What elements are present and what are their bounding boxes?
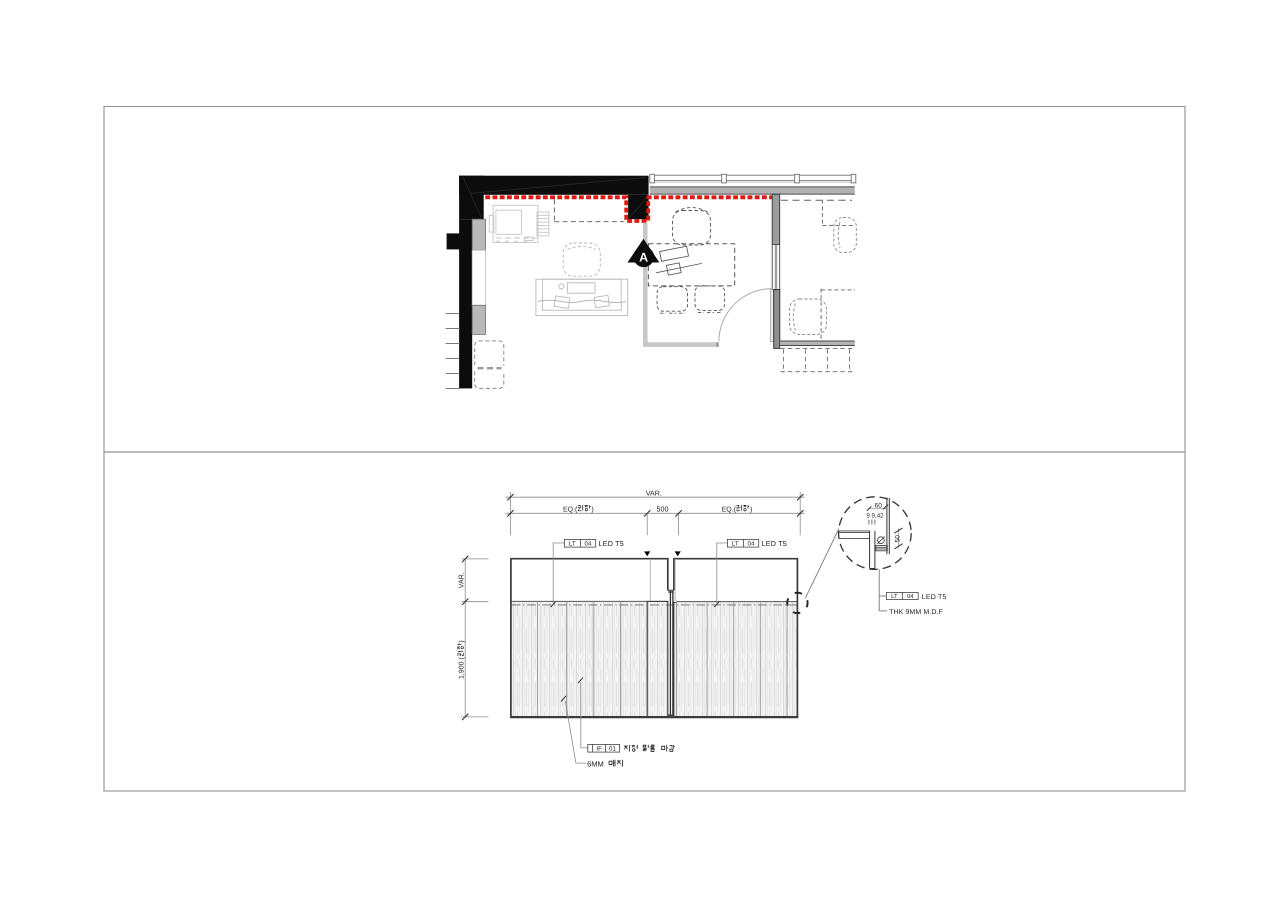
svg-text:500: 500 [657, 505, 669, 514]
svg-text:LT: LT [569, 540, 576, 547]
svg-text:EQ.(: EQ.( [563, 506, 578, 514]
svg-text:6MM: 6MM [587, 759, 604, 768]
svg-text:LT: LT [732, 540, 739, 547]
svg-text:VAR.: VAR. [458, 572, 465, 588]
svg-text:A: A [639, 250, 648, 264]
svg-text:60: 60 [875, 503, 883, 510]
svg-text:): ) [457, 640, 465, 642]
svg-text:1,900 (: 1,900 ( [457, 657, 465, 679]
svg-text:LED T5: LED T5 [922, 594, 947, 601]
svg-text:LED T5: LED T5 [599, 539, 624, 548]
svg-text:50: 50 [895, 535, 902, 543]
svg-text:LED T5: LED T5 [762, 539, 787, 548]
svg-text:04: 04 [585, 540, 592, 547]
svg-text:): ) [750, 506, 752, 514]
svg-text:EQ.(: EQ.( [722, 506, 737, 514]
svg-text:): ) [591, 506, 593, 514]
svg-text:04: 04 [907, 593, 914, 600]
svg-text:THK 9MM M.D.F: THK 9MM M.D.F [889, 609, 943, 616]
svg-text:9 9,42: 9 9,42 [866, 513, 884, 520]
svg-text:01: 01 [609, 745, 616, 752]
svg-text:IF: IF [596, 745, 602, 752]
svg-text:VAR.: VAR. [646, 490, 662, 497]
svg-text:04: 04 [748, 540, 755, 547]
svg-text:LT: LT [891, 593, 898, 600]
